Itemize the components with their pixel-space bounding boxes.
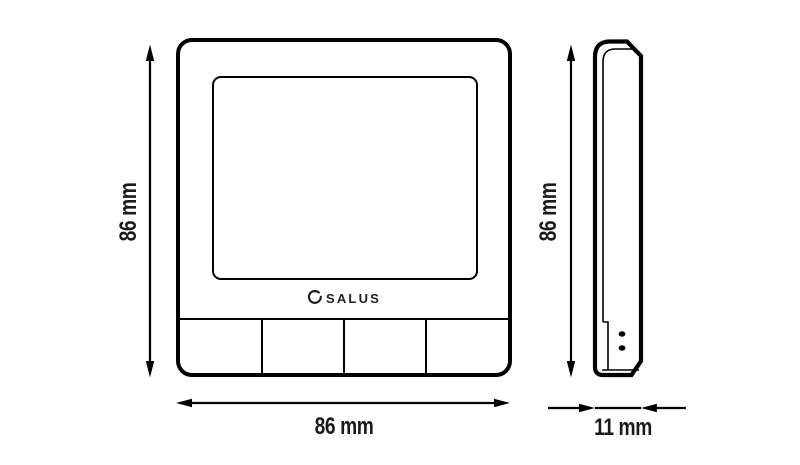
brand-logo: SALUS	[307, 290, 381, 306]
button-divider-1	[261, 318, 263, 373]
terminal-dot-top	[619, 331, 626, 336]
button-divider-3	[425, 318, 427, 373]
front-width-label: 86 mm	[307, 415, 381, 439]
side-height-label: 86 mm	[537, 175, 561, 249]
thermostat-dimension-drawing: SALUS 8	[0, 0, 800, 465]
side-height-arrow	[563, 44, 579, 378]
front-height-label: 86 mm	[117, 175, 141, 249]
thermostat-screen	[212, 76, 478, 280]
salus-swirl-icon	[307, 290, 323, 306]
side-outline	[595, 42, 641, 376]
thermostat-front-view: SALUS	[176, 38, 512, 377]
terminal-dot-bottom	[619, 345, 626, 350]
button-divider-2	[343, 318, 345, 373]
side-depth-label: 11 mm	[587, 416, 659, 440]
brand-logo-text: SALUS	[326, 291, 381, 305]
front-height-arrow	[142, 44, 158, 378]
front-width-arrow	[175, 395, 511, 411]
thermostat-side-view	[588, 36, 648, 384]
